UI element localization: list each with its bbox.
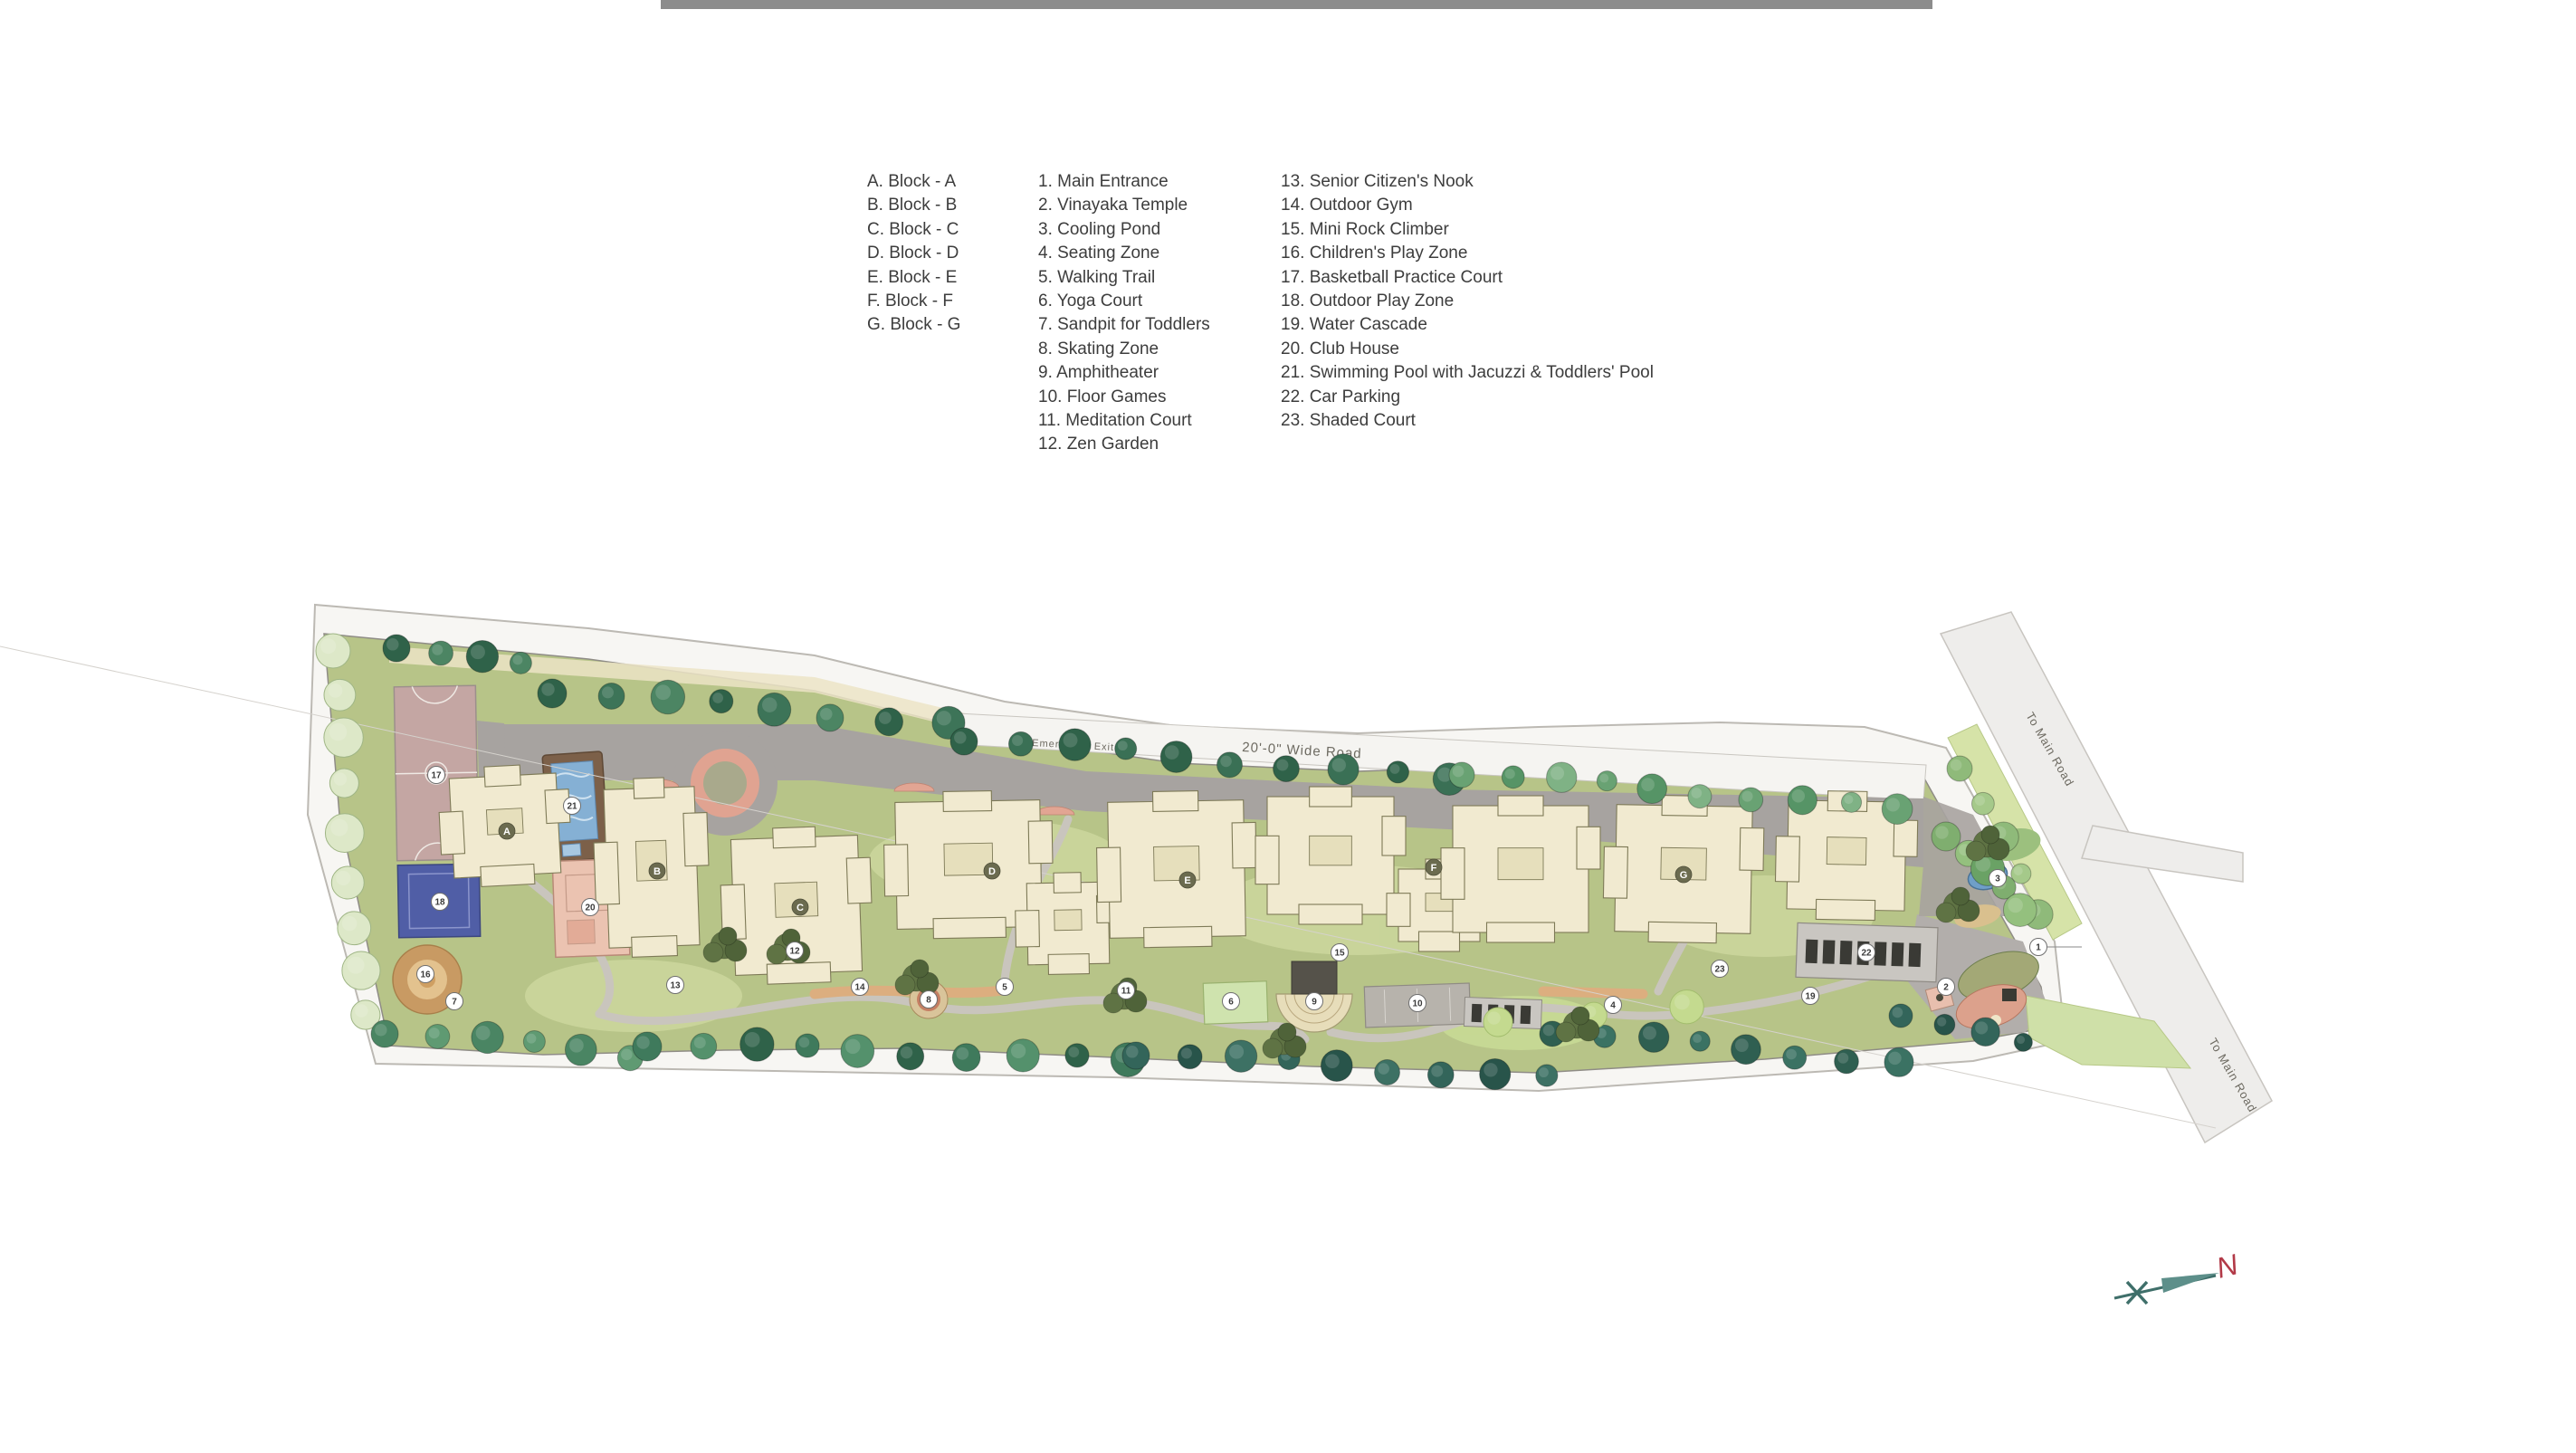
tree: [466, 640, 498, 672]
north-indicator: N: [2114, 1247, 2242, 1304]
map-marker-16: 16: [417, 966, 434, 983]
block-label-B: B: [649, 863, 665, 879]
tree: [1375, 1060, 1400, 1085]
svg-text:C: C: [797, 903, 804, 913]
svg-text:E: E: [1184, 875, 1190, 886]
map-marker-3: 3: [1989, 870, 2007, 887]
tree: [538, 679, 567, 708]
svg-text:15: 15: [1334, 949, 1345, 959]
tree: [1536, 1065, 1558, 1086]
tree: [598, 683, 625, 710]
tree: [1690, 1031, 1710, 1051]
tree: [1178, 1045, 1202, 1069]
building-cluster: [1441, 796, 1600, 942]
tree: [383, 635, 410, 662]
tree: [1637, 774, 1667, 804]
svg-text:22: 22: [1861, 949, 1872, 959]
svg-text:18: 18: [434, 898, 445, 908]
svg-text:D: D: [988, 866, 996, 877]
tree: [2003, 894, 2037, 927]
svg-text:11: 11: [1121, 987, 1131, 997]
page: { "palette": { "site-green": "#b7c488", …: [0, 0, 2576, 1448]
svg-text:9: 9: [1312, 998, 1317, 1008]
building-cluster: [1255, 787, 1406, 924]
tree: [1449, 762, 1474, 788]
svg-text:21: 21: [567, 802, 577, 812]
map-marker-6: 6: [1223, 993, 1240, 1010]
map-marker-23: 23: [1712, 961, 1729, 978]
svg-text:3: 3: [1995, 875, 2000, 884]
tree: [342, 951, 380, 989]
svg-text:14: 14: [854, 983, 865, 993]
tree: [1882, 794, 1913, 825]
tree: [875, 708, 903, 736]
tree: [1122, 1042, 1150, 1069]
svg-text:20: 20: [585, 903, 596, 913]
map-marker-18: 18: [432, 894, 449, 911]
tree: [1597, 771, 1617, 791]
block-label-F: F: [1426, 859, 1442, 875]
tree: [472, 1021, 503, 1053]
svg-text:G: G: [1680, 870, 1688, 881]
tree: [1947, 756, 1972, 781]
tree: [425, 1025, 450, 1049]
map-marker-13: 13: [667, 977, 684, 994]
tree: [1059, 729, 1091, 760]
block-label-G: G: [1675, 866, 1692, 883]
tree: [338, 912, 371, 945]
tree: [1788, 786, 1817, 815]
map-marker-22: 22: [1858, 944, 1875, 961]
svg-text:1: 1: [2036, 943, 2041, 953]
tree: [1971, 1018, 1999, 1046]
tree: [331, 866, 364, 899]
svg-text:F: F: [1431, 863, 1437, 874]
tree: [1321, 1050, 1352, 1082]
map-marker-17: 17: [428, 767, 445, 784]
map-marker-4: 4: [1605, 997, 1622, 1014]
map-marker-2: 2: [1938, 979, 1955, 996]
tree: [816, 704, 844, 731]
svg-text:6: 6: [1228, 998, 1234, 1008]
tree: [1274, 756, 1300, 782]
map-marker-21: 21: [564, 798, 581, 815]
tree: [1547, 762, 1577, 792]
map-marker-1: 1: [2030, 939, 2047, 956]
svg-text:4: 4: [1610, 1001, 1616, 1011]
tree: [325, 814, 364, 853]
tree: [651, 680, 684, 713]
tree: [2014, 1033, 2032, 1051]
tree: [1841, 792, 1861, 812]
tree: [1688, 785, 1712, 808]
north-arrow: [2161, 1273, 2219, 1293]
tree: [510, 652, 531, 674]
map-marker-19: 19: [1802, 988, 1819, 1005]
map-marker-8: 8: [921, 991, 938, 1008]
map-marker-10: 10: [1409, 995, 1426, 1012]
svg-text:8: 8: [926, 996, 931, 1006]
tree: [1971, 792, 1994, 815]
svg-text:A: A: [503, 827, 510, 837]
tree: [710, 690, 733, 713]
tree: [1065, 1044, 1089, 1067]
tree: [758, 693, 791, 726]
tree: [1783, 1046, 1807, 1069]
tree: [1328, 754, 1359, 785]
tree: [1484, 1008, 1512, 1037]
tree: [1932, 822, 1961, 851]
tree: [1387, 761, 1408, 783]
tree: [523, 1031, 545, 1053]
svg-text:5: 5: [1002, 983, 1007, 993]
block-label-A: A: [499, 823, 515, 839]
block-label-E: E: [1179, 872, 1196, 888]
map-marker-14: 14: [852, 979, 869, 996]
svg-text:10: 10: [1412, 999, 1423, 1009]
tree: [324, 679, 356, 711]
svg-text:B: B: [654, 866, 661, 877]
tree: [1160, 741, 1192, 773]
tree: [329, 769, 358, 798]
tree: [952, 1044, 980, 1072]
map-marker-5: 5: [997, 979, 1014, 996]
tree: [1502, 766, 1524, 789]
map-marker-9: 9: [1306, 993, 1323, 1010]
tree: [841, 1035, 874, 1068]
tree: [565, 1034, 596, 1066]
north-label: N: [2213, 1247, 2242, 1285]
svg-text:19: 19: [1805, 992, 1816, 1002]
block-label-C: C: [792, 899, 808, 915]
tree: [691, 1033, 717, 1059]
site-plan-map: 20'-0" Wide Road Emergency Exit: [0, 0, 2576, 1448]
svg-text:12: 12: [789, 947, 800, 957]
tree: [1427, 1062, 1454, 1088]
svg-text:17: 17: [431, 771, 442, 781]
tree: [1670, 989, 1703, 1023]
map-marker-7: 7: [446, 993, 463, 1010]
tree: [1835, 1049, 1859, 1074]
tree: [1115, 738, 1137, 760]
building-cluster: [1096, 789, 1258, 948]
tree: [324, 718, 363, 757]
map-marker-12: 12: [787, 942, 804, 960]
tree: [1007, 1039, 1039, 1072]
svg-text:23: 23: [1714, 965, 1725, 975]
block-label-D: D: [984, 863, 1000, 879]
tree: [1480, 1059, 1511, 1090]
tree: [1217, 752, 1243, 778]
tree: [1638, 1022, 1668, 1052]
tree: [796, 1034, 819, 1057]
tree: [371, 1020, 398, 1047]
tree: [429, 641, 453, 665]
map-marker-15: 15: [1331, 944, 1349, 961]
map-marker-11: 11: [1118, 982, 1135, 999]
tree: [1225, 1040, 1256, 1072]
tree: [897, 1043, 924, 1070]
tree: [1884, 1047, 1913, 1076]
tree: [1732, 1035, 1761, 1065]
tree: [950, 728, 978, 755]
svg-text:13: 13: [670, 981, 681, 991]
svg-text:16: 16: [420, 970, 431, 980]
tree: [1739, 788, 1763, 812]
map-marker-20: 20: [582, 899, 599, 916]
tree: [1889, 1004, 1913, 1028]
svg-text:7: 7: [452, 998, 457, 1008]
tree: [633, 1032, 662, 1061]
tree: [1934, 1014, 1955, 1035]
tree: [316, 634, 350, 668]
svg-text:2: 2: [1943, 983, 1949, 993]
tree: [1008, 731, 1033, 756]
tree: [740, 1028, 774, 1061]
